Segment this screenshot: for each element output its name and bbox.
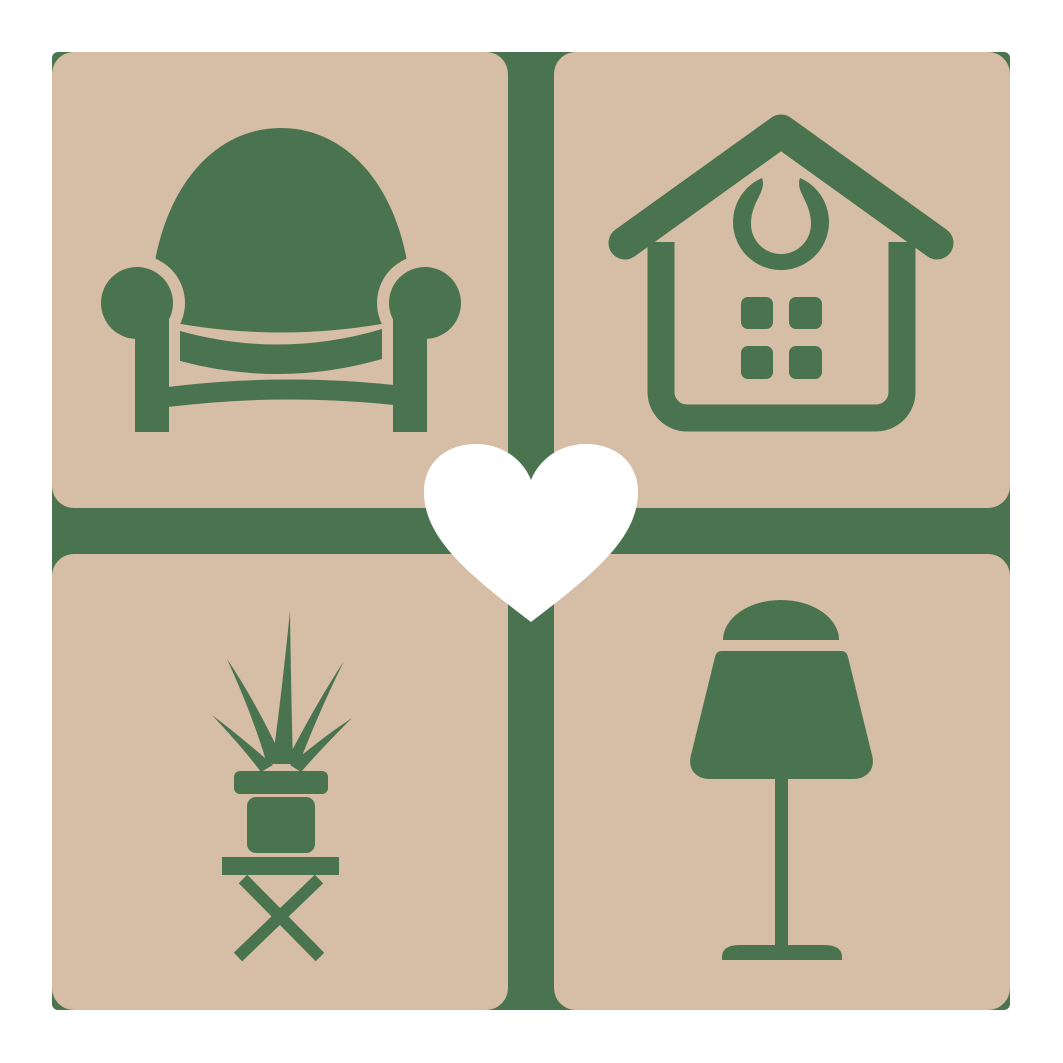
armchair-right-leg — [393, 300, 427, 432]
lamp-stem — [775, 779, 788, 947]
window-pane — [789, 297, 822, 329]
pot-rim — [234, 771, 328, 794]
lamp-shade — [690, 651, 873, 779]
logo-graphic — [0, 0, 1063, 1063]
pot-body — [247, 797, 315, 853]
lamp-base — [722, 945, 842, 960]
armchair-left-leg — [135, 300, 169, 432]
window-pane — [789, 346, 822, 379]
stool-top — [222, 857, 339, 875]
window-pane — [741, 297, 773, 329]
logo-canvas — [0, 0, 1063, 1063]
window-pane — [741, 346, 773, 379]
